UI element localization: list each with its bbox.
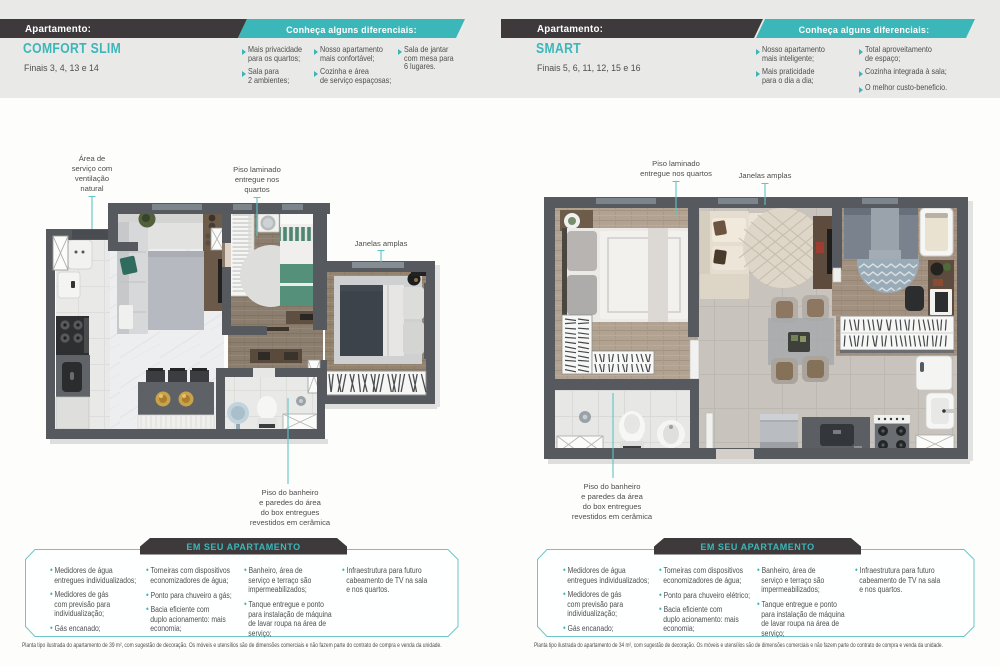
svg-text:Área de: Área de [79,154,106,163]
svg-text:Piso laminado: Piso laminado [652,159,700,168]
svg-text:do box entregues: do box entregues [261,508,320,517]
svg-text:quartos: quartos [244,185,270,194]
svg-text:e paredes do área: e paredes do área [259,498,321,507]
svg-text:natural: natural [80,184,104,193]
svg-text:e paredes da área: e paredes da área [581,492,643,501]
svg-text:ventilação: ventilação [75,174,109,183]
svg-text:entregue nos: entregue nos [235,175,280,184]
svg-text:Janelas amplas: Janelas amplas [739,171,792,180]
svg-text:Piso do banheiro: Piso do banheiro [584,482,641,491]
svg-text:Piso laminado: Piso laminado [233,165,281,174]
svg-text:serviço com: serviço com [72,164,113,173]
svg-text:revestidos em cerâmica: revestidos em cerâmica [572,512,653,521]
svg-text:do box entregues: do box entregues [583,502,642,511]
svg-text:Janelas amplas: Janelas amplas [355,239,408,248]
svg-text:revestidos em cerâmica: revestidos em cerâmica [250,518,331,527]
svg-text:Piso do banheiro: Piso do banheiro [262,488,319,497]
svg-text:entregue nos quartos: entregue nos quartos [640,169,712,178]
